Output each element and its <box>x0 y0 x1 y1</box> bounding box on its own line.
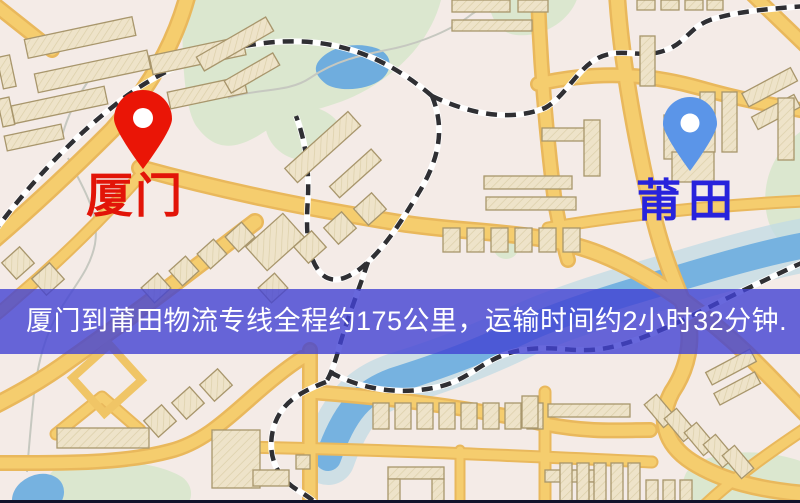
route-info-text: 厦门到莆田物流专线全程约175公里，运输时间约2小时32分钟. <box>26 289 787 354</box>
destination-label: 莆田 <box>636 178 740 223</box>
destination-pin-hole <box>681 114 700 133</box>
map-canvas <box>0 0 800 503</box>
map-screenshot: 厦门 莆田 厦门到莆田物流专线全程约175公里，运输时间约2小时32分钟. <box>0 0 800 503</box>
origin-label: 厦门 <box>86 172 184 219</box>
origin-pin-hole <box>133 108 153 128</box>
route-info-banner: 厦门到莆田物流专线全程约175公里，运输时间约2小时32分钟. <box>0 289 800 354</box>
